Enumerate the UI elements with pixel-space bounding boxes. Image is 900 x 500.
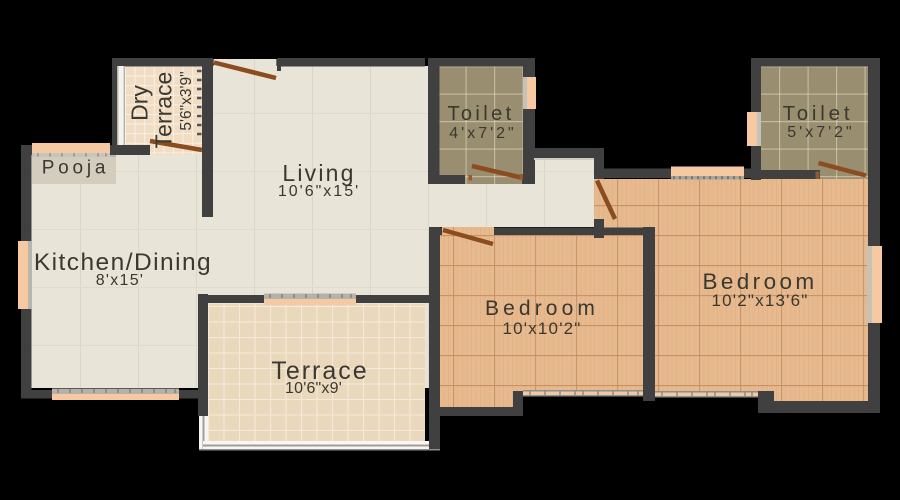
svg-text:Toilet: Toilet [447,103,514,125]
svg-text:10'6"x15': 10'6"x15' [278,183,360,200]
svg-text:Dry: Dry [127,85,153,121]
svg-text:Bedroom: Bedroom [485,297,599,320]
svg-text:Toilet: Toilet [783,102,854,125]
svg-text:8'x15': 8'x15' [96,272,145,289]
svg-text:10'x10'2": 10'x10'2" [502,319,581,338]
svg-text:10'2"x13'6": 10'2"x13'6" [712,291,809,310]
svg-text:5'x7'2": 5'x7'2" [787,124,854,141]
svg-text:4'x7'2": 4'x7'2" [449,125,516,142]
svg-text:Pooja: Pooja [42,158,110,179]
svg-text:Terrace: Terrace [151,72,177,149]
svg-text:10'6"x9': 10'6"x9' [285,380,342,397]
svg-text:5'6"x3'9": 5'6"x3'9" [178,71,195,130]
